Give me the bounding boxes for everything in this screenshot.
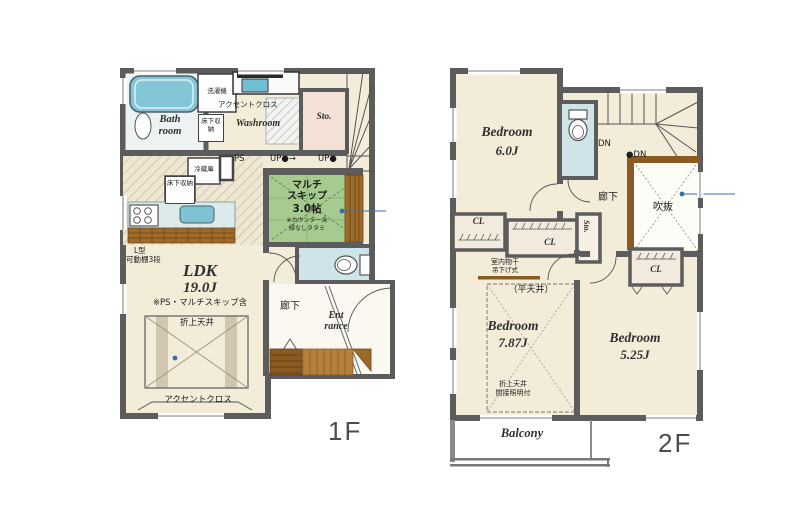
- balcony-label: Balcony: [482, 426, 562, 440]
- vanity-counter-icon: [233, 72, 299, 94]
- stairs-up-label-2: UP●: [318, 155, 337, 165]
- sink-icon: [180, 206, 214, 223]
- pipe-space-label: PS: [234, 155, 245, 165]
- ldk-name: LDK: [160, 261, 240, 281]
- pipe-space-icon: [220, 156, 233, 180]
- floorplan-canvas: Bath room 洗濯機 アクセントクロス Washroom 床下収納 Sto…: [0, 0, 800, 531]
- floor1-label: 1F: [328, 416, 362, 447]
- toilet-icon: [569, 110, 587, 141]
- underfloor-storage-washroom: 床下収納: [198, 114, 224, 142]
- bedroom787-note-1: 折上天井: [488, 380, 538, 388]
- stairs-down-label-1: DN: [598, 140, 611, 150]
- storage-label: Sto.: [302, 112, 346, 123]
- multi-skip-label-2: スキップ: [272, 191, 342, 203]
- floor2-plan: Bedroom 6.0J DN ●DN 廊下 吹抜 CL CL Sto. 室内物…: [450, 68, 740, 473]
- toilet-icon: [335, 255, 370, 275]
- closet2-label: CL: [530, 237, 570, 247]
- bedroom6-size: 6.0J: [467, 144, 547, 159]
- shelf-note-line2: 可動棚3段: [126, 256, 161, 265]
- void-label: 吹抜: [653, 202, 673, 214]
- storage2-label: Sto.: [582, 220, 591, 260]
- multi-skip-note-2: 縁なしタタミ: [272, 226, 342, 233]
- bedroom787-size: 7.87J: [472, 336, 554, 351]
- coffered-ceiling-label: 折上天井: [162, 319, 232, 329]
- multi-skip-label-1: マルチ: [272, 180, 342, 192]
- bathroom-area: [123, 71, 206, 153]
- bedroom6-name: Bedroom: [467, 124, 547, 140]
- stairs-up-label-1: UP●→: [270, 155, 296, 165]
- tatami-counter-icon: [345, 175, 363, 242]
- floor1-plan: Bath room 洗濯機 アクセントクロス Washroom 床下収納 Sto…: [120, 68, 405, 430]
- ldk-note: ※PS・マルチスキップ含: [142, 299, 258, 309]
- entrance-label-line2: rance: [312, 321, 360, 333]
- void-area: [627, 156, 735, 250]
- bathtub-icon: [130, 76, 198, 112]
- hallway-label-2f: 廊下: [598, 192, 618, 204]
- closet1-label: CL: [456, 216, 501, 226]
- drying-bar-icon: [478, 276, 540, 280]
- closet3-label: CL: [636, 264, 676, 274]
- bedroom787-name: Bedroom: [472, 318, 554, 334]
- ldk-size: 19.0J: [160, 280, 240, 297]
- floor2-label: 2F: [658, 428, 692, 459]
- underfloor-storage-kitchen: 床下収納: [165, 176, 195, 204]
- stairs-down-label-2: ●DN: [626, 151, 646, 161]
- genkan-floor-icon: [303, 349, 353, 375]
- multi-skip-label-3: 3.0帖: [272, 203, 342, 215]
- fridge-label: 冷蔵庫: [188, 166, 220, 173]
- laundry-label: 洗濯機: [199, 88, 235, 95]
- annotation-dot: [173, 356, 178, 361]
- stove-icon: [130, 205, 158, 226]
- hallway-label-1f: 廊下: [280, 301, 300, 313]
- bedroom787-note-2: 間接照明付: [488, 389, 538, 397]
- drying-label-1: 室内物干: [474, 258, 536, 266]
- bathroom-label: Bath room: [152, 114, 188, 138]
- entrance-label-line1: Ent: [316, 310, 356, 322]
- accent-cross-top-label: アクセントクロス: [218, 101, 278, 110]
- kitchen-front-panel: [128, 228, 235, 243]
- bedroom525-name: Bedroom: [595, 330, 675, 346]
- accent-cross-bottom-label: アクセントクロス: [153, 396, 243, 406]
- bath-door-icon: [135, 113, 151, 139]
- drying-label-2: 吊下げ式: [474, 267, 536, 274]
- genkan-step-icon: [270, 349, 302, 375]
- bedroom525-size: 5.25J: [595, 348, 675, 363]
- washroom-label: Washroom: [220, 118, 296, 130]
- flat-ceiling-label: （平天井）: [490, 285, 572, 295]
- multi-skip-note-1: ※カウンター含: [272, 218, 342, 225]
